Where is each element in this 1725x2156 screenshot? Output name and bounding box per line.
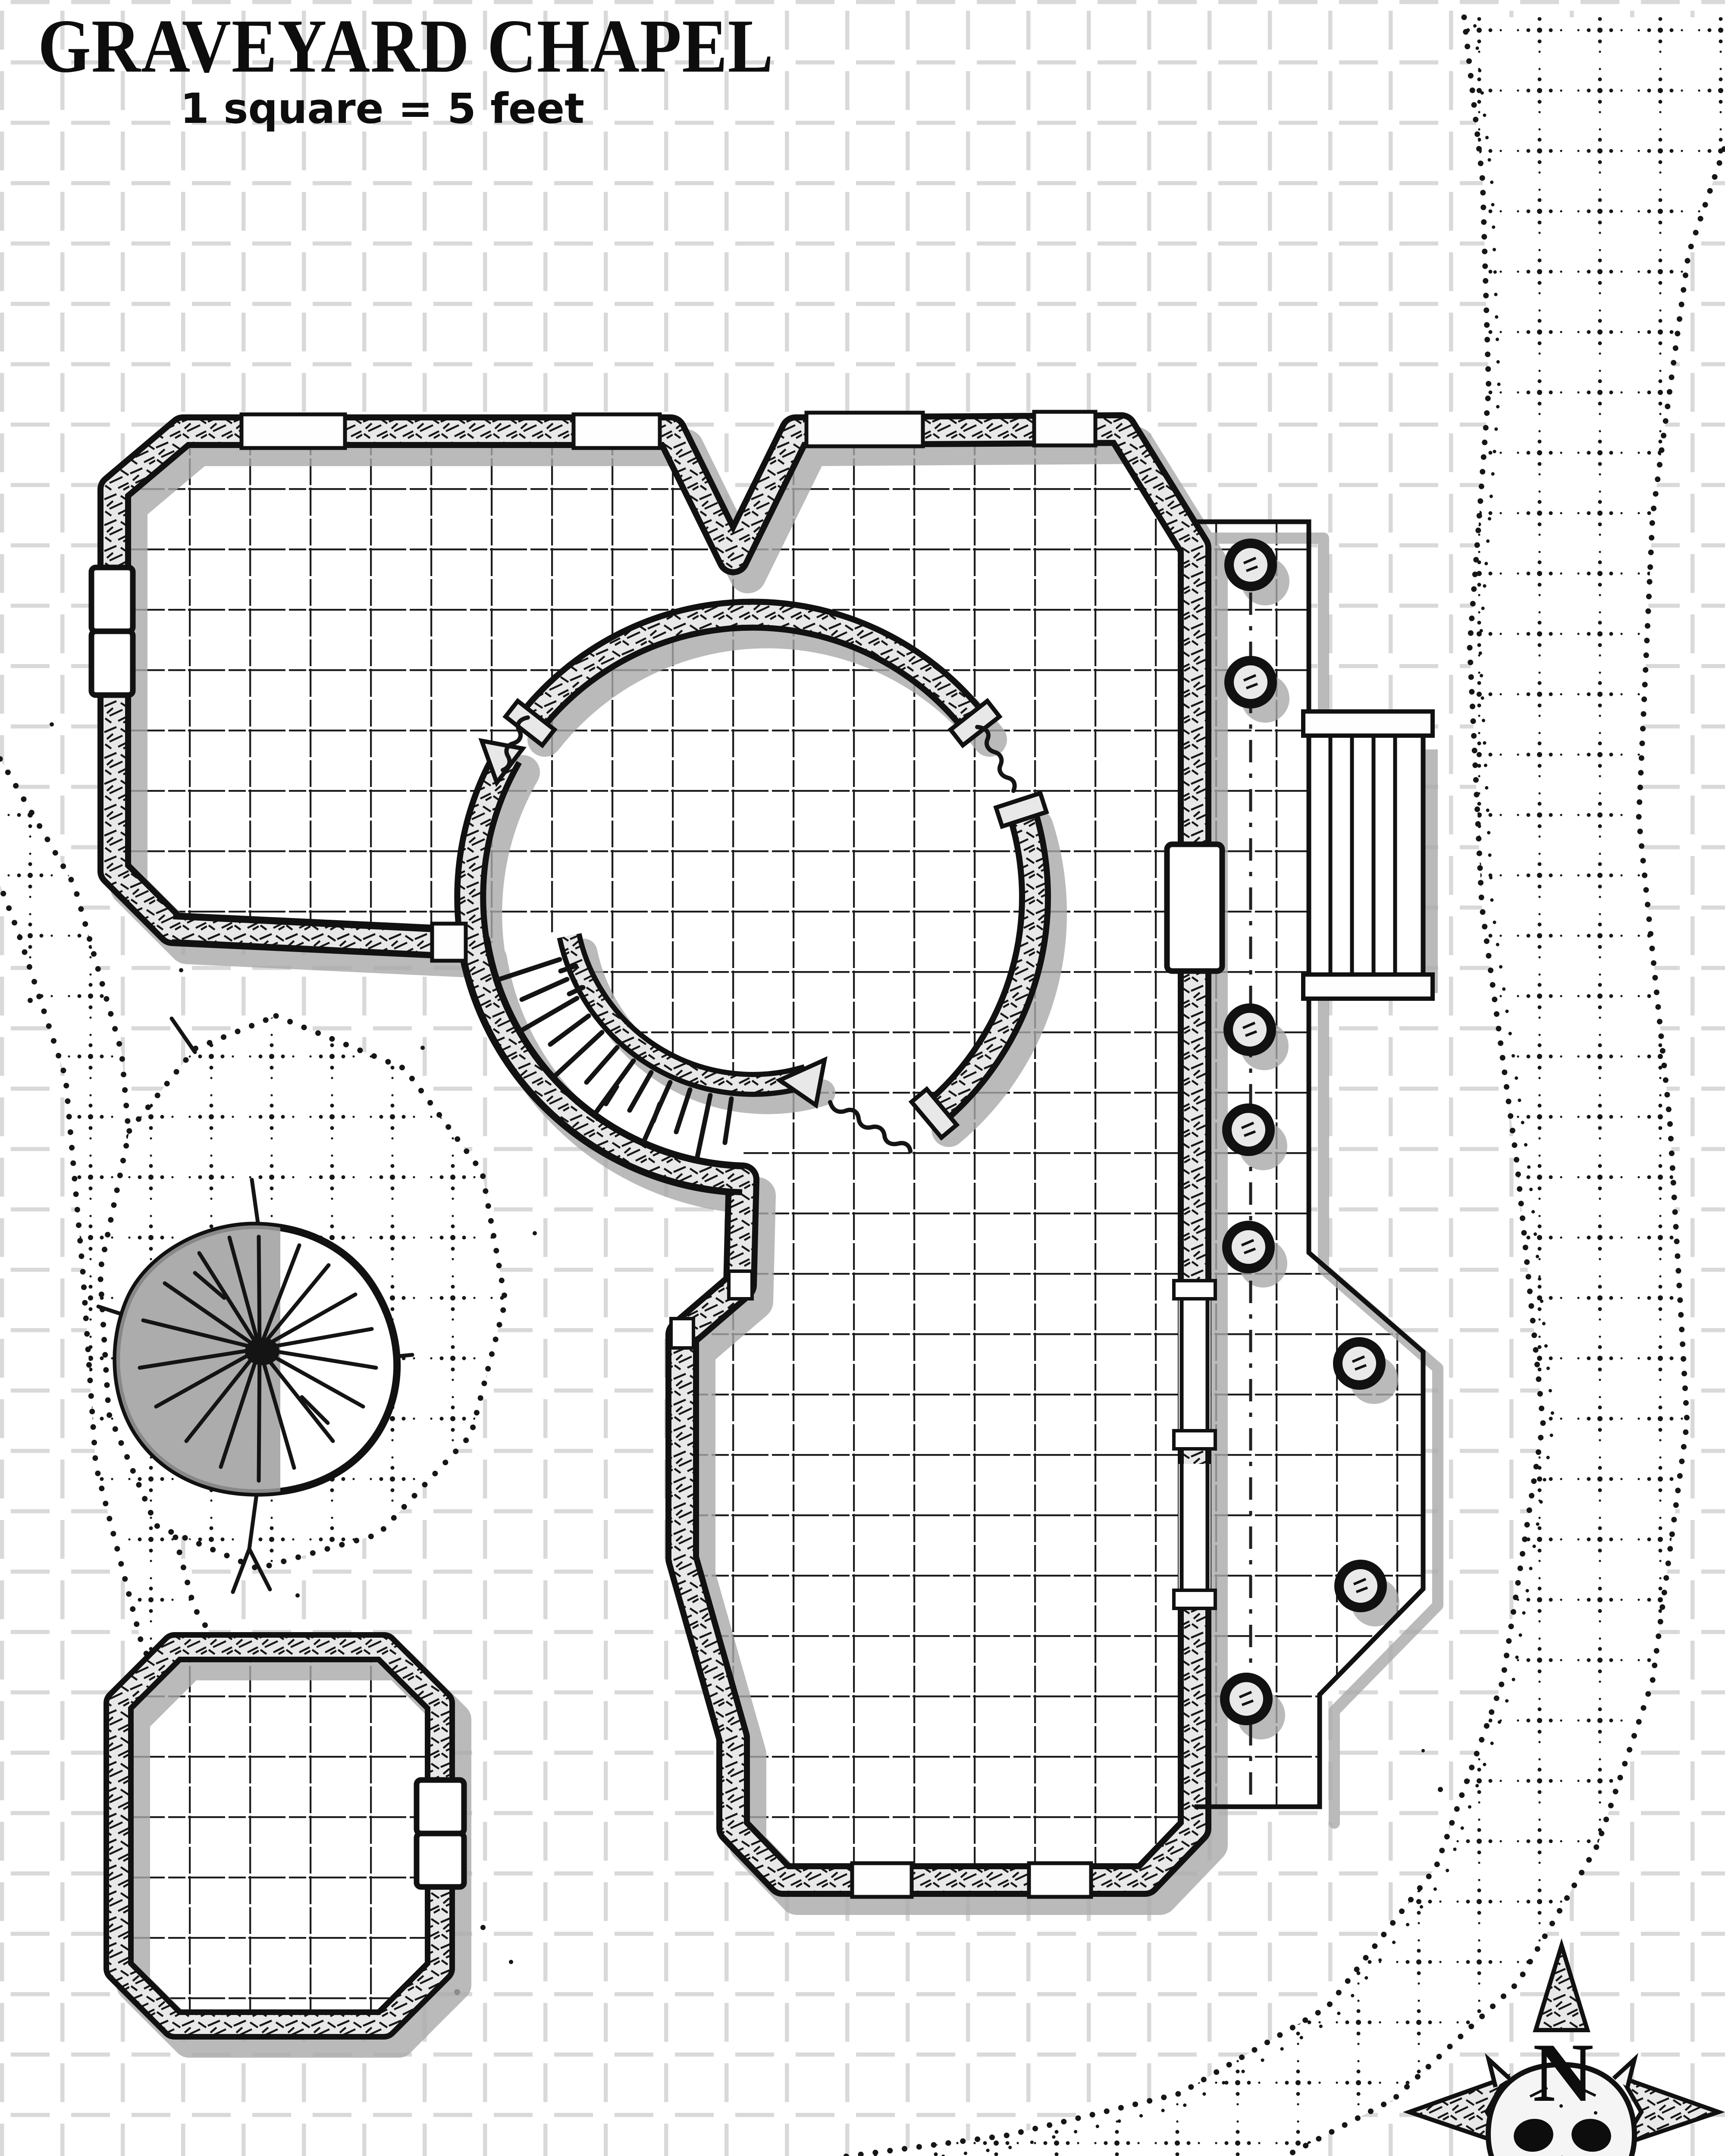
pillar — [1339, 1564, 1382, 1608]
pillar — [1225, 1677, 1268, 1720]
entrance-stairs-east — [1303, 711, 1433, 999]
southwest-chamber-door — [417, 1780, 464, 1887]
compass-north-label: N — [1533, 2026, 1594, 2119]
pillar — [1227, 1108, 1270, 1151]
dungeon-map-canvas: N — [0, 0, 1725, 2156]
pillar — [1227, 1225, 1270, 1269]
east-portico-door — [1167, 844, 1222, 971]
map-scale-subtitle: 1 square = 5 feet — [180, 85, 774, 133]
pillar — [1338, 1342, 1381, 1385]
tree-trunk-knot — [245, 1338, 279, 1365]
pillar — [1228, 1008, 1271, 1051]
graveyard-chapel-map-page: N GRAVEYARD CHAPEL 1 square = 5 feet — [0, 0, 1725, 2156]
west-double-door — [91, 567, 133, 695]
pillar — [1229, 543, 1272, 586]
hall-south-wall — [172, 929, 459, 943]
east-wall-openings — [1174, 1281, 1215, 1608]
pillar — [1229, 661, 1272, 704]
map-title: GRAVEYARD CHAPEL — [38, 3, 774, 91]
